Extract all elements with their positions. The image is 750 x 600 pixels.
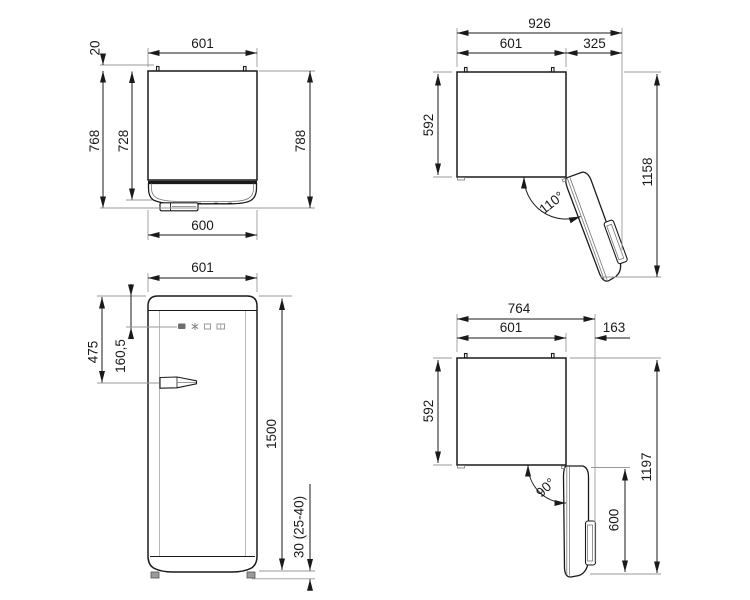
cabinet-outline bbox=[457, 72, 566, 177]
hinge-mark bbox=[562, 178, 566, 181]
top-view-door-90: 90° 764 601 163 592 600 1197 bbox=[421, 301, 661, 577]
door-handle bbox=[586, 521, 596, 565]
cabinet-outline bbox=[148, 71, 257, 180]
fridge-outline bbox=[148, 296, 257, 572]
top-view-door-closed: 601 20 768 728 788 600 bbox=[87, 36, 315, 240]
front-view: 601 475 160,5 1500 30 (25-40) bbox=[86, 260, 316, 587]
dimension-label: 764 bbox=[508, 301, 531, 316]
open-door-group bbox=[562, 168, 632, 284]
dimension-label: 601 bbox=[191, 260, 214, 275]
dimension-label: 160,5 bbox=[113, 339, 128, 373]
hinge-mark bbox=[458, 466, 465, 469]
cabinet-outline bbox=[457, 358, 566, 465]
dimension-label: 600 bbox=[607, 509, 622, 532]
dimension-label: 1197 bbox=[639, 452, 654, 481]
dimension-label: 592 bbox=[421, 114, 436, 137]
foot bbox=[247, 572, 255, 578]
dimension-label: 163 bbox=[603, 320, 626, 335]
hinge-mark bbox=[562, 466, 565, 469]
dimension-label: 30 (25-40) bbox=[292, 496, 307, 558]
dimension-label: 728 bbox=[116, 130, 131, 153]
top-view-door-110: 110° 926 601 325 592 1158 bbox=[421, 16, 661, 284]
hinge-mark bbox=[458, 178, 465, 181]
dimension-label: 592 bbox=[421, 400, 436, 423]
angle-label: 90° bbox=[533, 475, 558, 500]
door-outline bbox=[564, 466, 589, 577]
angle-label: 110° bbox=[536, 188, 566, 216]
dimension-label: 1500 bbox=[264, 419, 279, 449]
dimension-label: 475 bbox=[86, 341, 101, 364]
power-icon bbox=[178, 324, 186, 330]
dimension-label: 788 bbox=[293, 130, 308, 153]
open-door-group bbox=[562, 466, 596, 577]
dimension-label: 600 bbox=[191, 218, 214, 233]
drawing-canvas: 601 20 768 728 788 600 bbox=[0, 0, 750, 600]
dimension-label: 926 bbox=[528, 16, 551, 31]
dimension-label: 20 bbox=[88, 40, 103, 55]
dimension-label: 1158 bbox=[640, 157, 655, 186]
dimension-label: 768 bbox=[87, 130, 102, 153]
technical-drawing: 601 20 768 728 788 600 bbox=[0, 0, 750, 600]
foot bbox=[151, 572, 159, 578]
dimension-label: 601 bbox=[500, 320, 523, 335]
dimension-label: 325 bbox=[583, 36, 606, 51]
dimension-label: 601 bbox=[500, 36, 523, 51]
dimension-label: 601 bbox=[191, 36, 214, 51]
